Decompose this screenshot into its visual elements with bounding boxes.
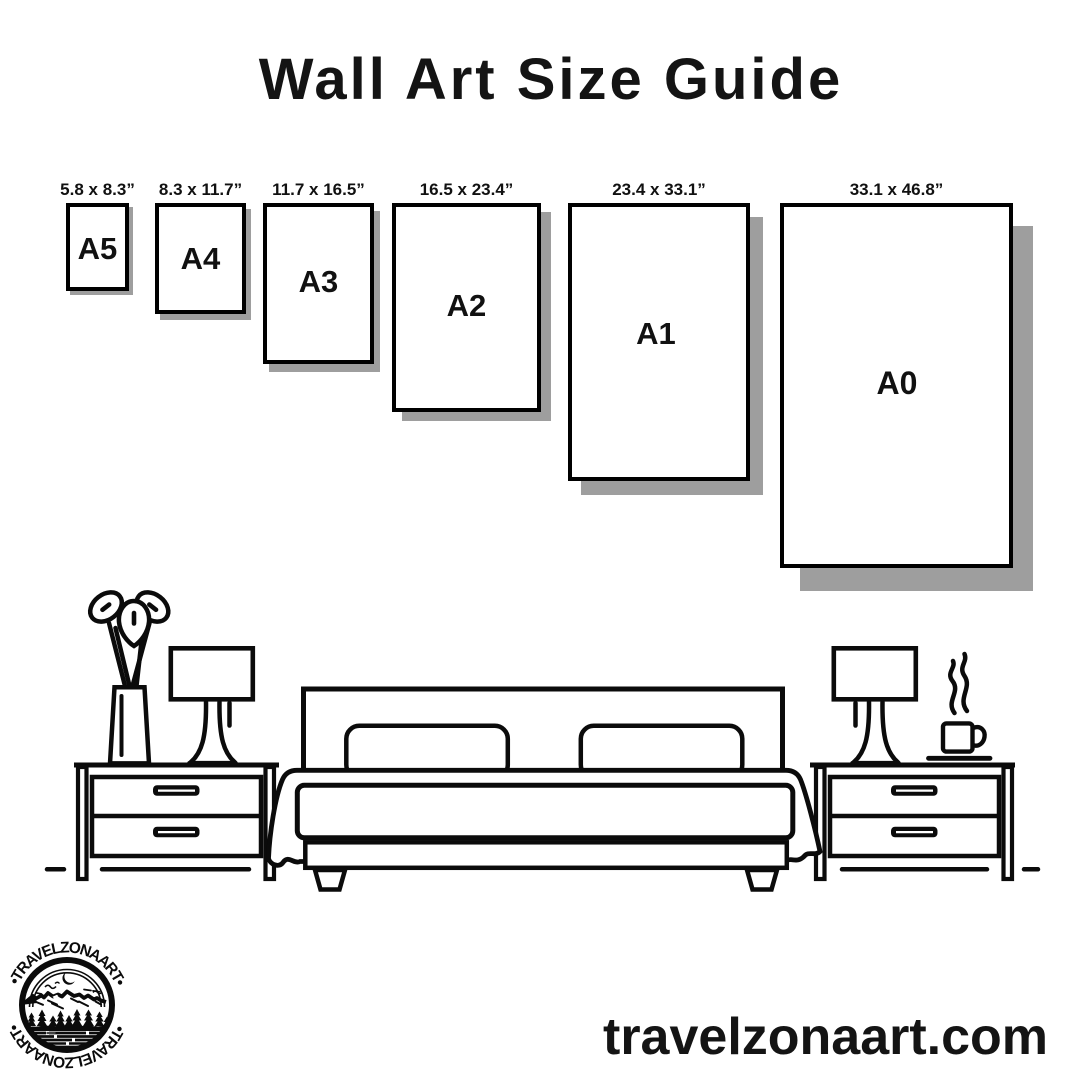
svg-text:•TRAVELZONAART•: •TRAVELZONAART• bbox=[6, 939, 128, 988]
